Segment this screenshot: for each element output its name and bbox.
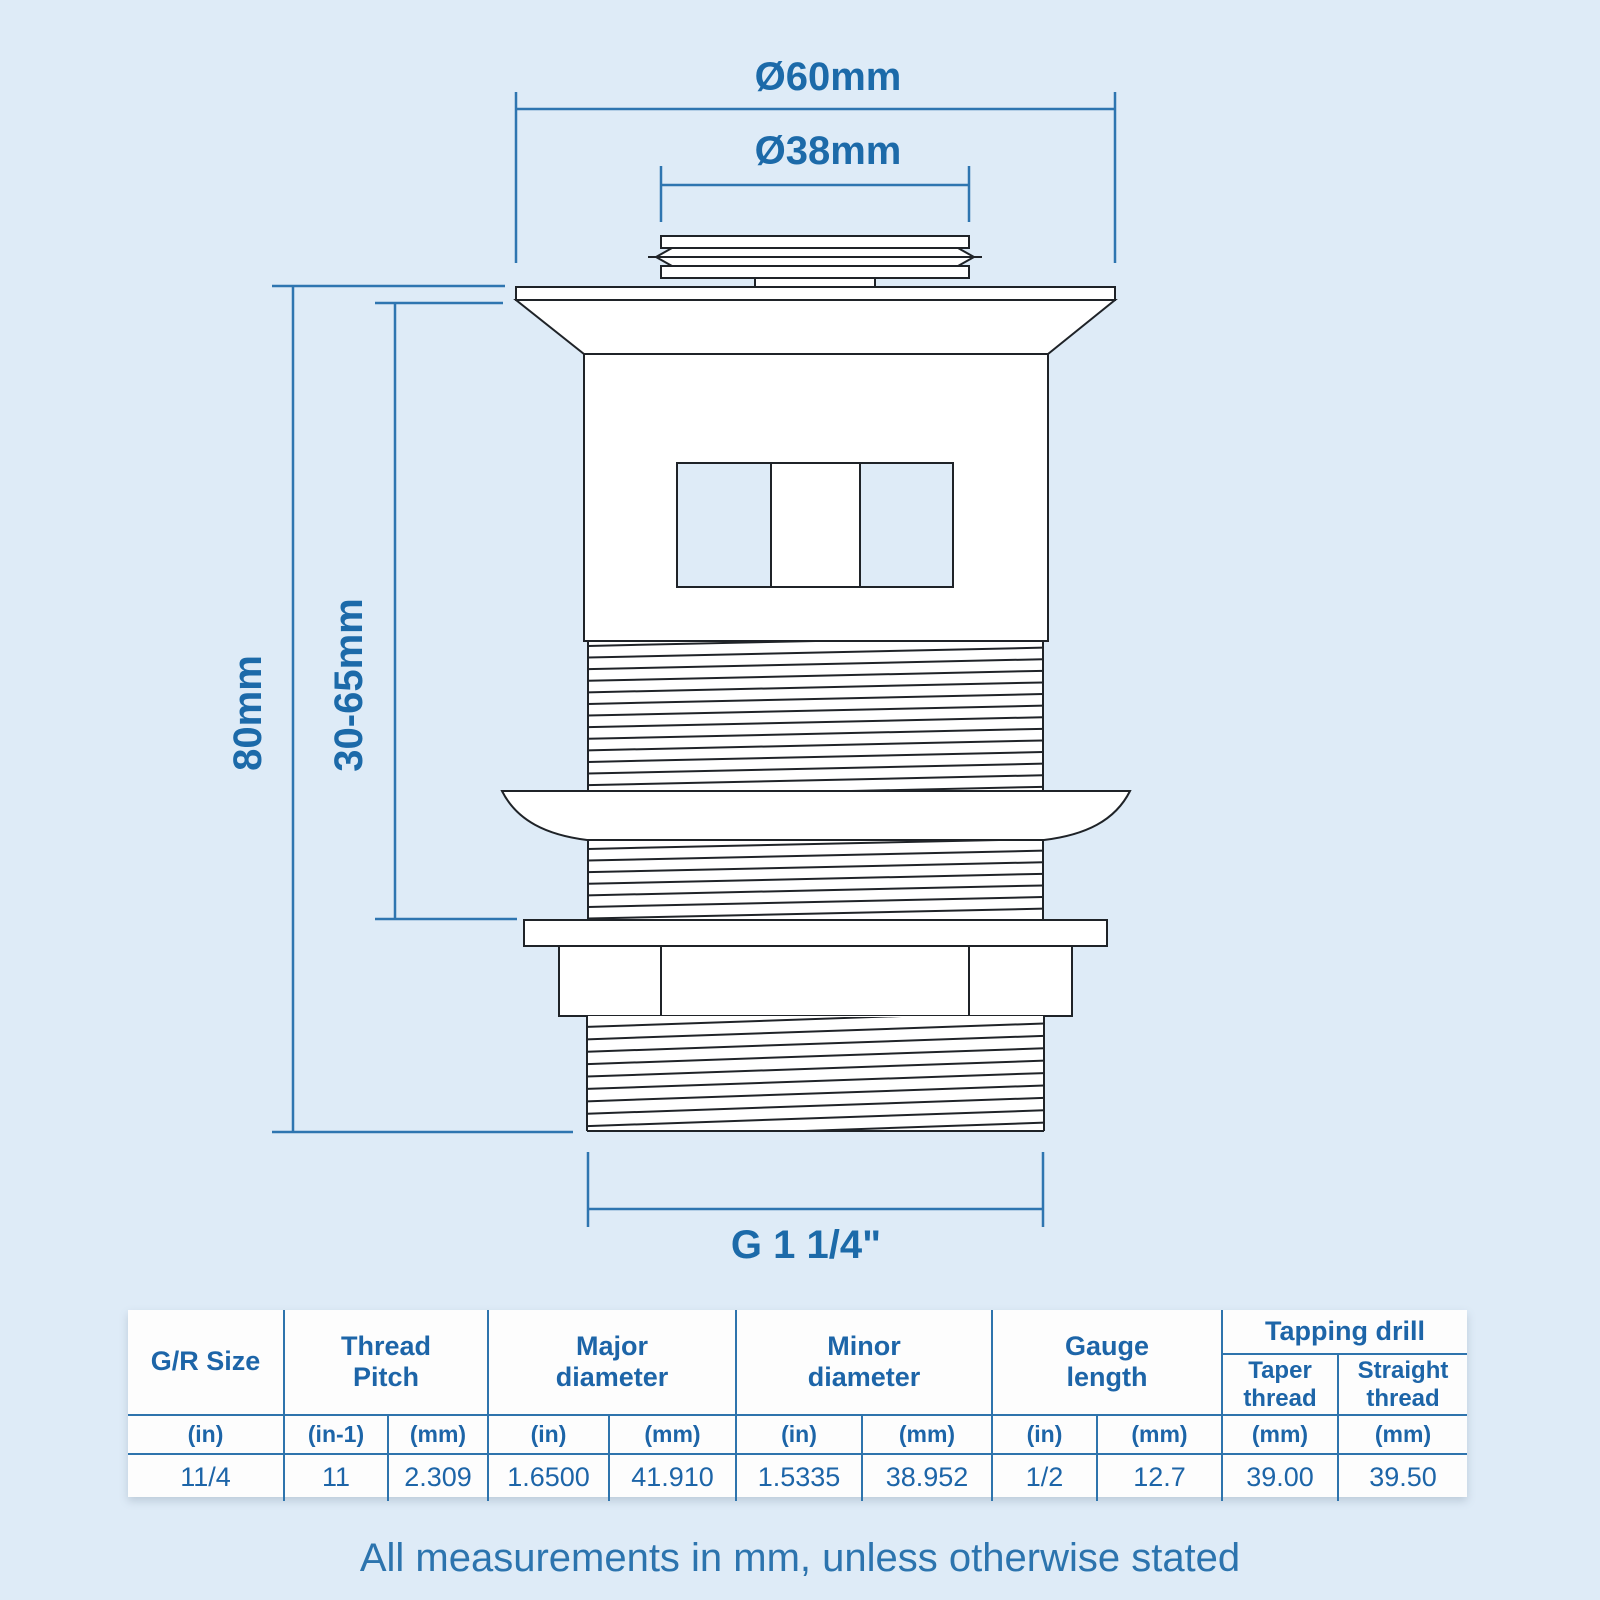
thread-lower-section <box>585 1011 1046 1151</box>
waste-body <box>584 354 1048 641</box>
unit-cell: (mm) <box>862 1415 992 1454</box>
dished-washer <box>502 791 1130 840</box>
plug-stem-tab <box>755 278 875 287</box>
thread-spec-table-panel: G/R Size Thread Pitch Major diameter Min… <box>128 1310 1467 1497</box>
unit-cell: (mm) <box>1097 1415 1222 1454</box>
backnut-flange <box>524 920 1107 946</box>
plug-top-disc <box>661 236 969 248</box>
header-thread-pitch-label: Thread Pitch <box>322 1331 450 1393</box>
dim-label-g114: G 1 1/4" <box>731 1223 881 1267</box>
value-cell: 38.952 <box>862 1454 992 1501</box>
value-cell: 1.5335 <box>736 1454 862 1501</box>
basin-waste-spec-sheet: Ø60mm Ø38mm 80mm 30-65mm G 1 1/4" <box>0 0 1600 1600</box>
dim-inner-diameter-38: Ø38mm <box>661 129 969 222</box>
value-cell: 39.00 <box>1222 1454 1338 1501</box>
dim-label-80mm: 80mm <box>226 655 270 771</box>
value-cell: 12.7 <box>1097 1454 1222 1501</box>
unit-cell: (in) <box>128 1415 284 1454</box>
top-flange <box>516 287 1115 354</box>
header-minor-diameter-label: Minor diameter <box>789 1331 939 1393</box>
unit-cell: (in) <box>736 1415 862 1454</box>
value-cell: 11 <box>284 1454 388 1501</box>
backnut-hex <box>559 946 1072 1016</box>
value-cell: 1.6500 <box>488 1454 609 1501</box>
header-straight-thread: Straight thread <box>1338 1354 1467 1415</box>
header-gauge-length: Gauge length <box>992 1310 1222 1415</box>
dim-total-height-80: 80mm <box>226 286 573 1132</box>
unit-cell: (mm) <box>609 1415 736 1454</box>
dim-adjustable-height-30-65: 30-65mm <box>327 303 517 919</box>
plug-bottom-disc <box>661 266 969 278</box>
dim-label-30-65mm: 30-65mm <box>327 598 371 771</box>
unit-cell: (in-1) <box>284 1415 388 1454</box>
flange-rim <box>516 287 1115 300</box>
thread-mid-section <box>586 839 1045 930</box>
value-cell: 11/4 <box>128 1454 284 1501</box>
measurements-note: All measurements in mm, unless otherwise… <box>0 1536 1600 1581</box>
unit-cell: (mm) <box>388 1415 488 1454</box>
header-tapping-drill: Tapping drill <box>1222 1310 1467 1354</box>
header-gr-size: G/R Size <box>128 1310 284 1415</box>
unit-cell: (mm) <box>1222 1415 1338 1454</box>
plug-cap <box>648 236 982 287</box>
dim-label-60mm: Ø60mm <box>755 55 902 99</box>
flange-taper <box>516 300 1115 354</box>
header-major-diameter-label: Major diameter <box>537 1331 687 1393</box>
unit-cell: (in) <box>992 1415 1097 1454</box>
header-taper-thread: Taper thread <box>1222 1354 1338 1415</box>
unit-cell: (in) <box>488 1415 609 1454</box>
value-cell: 1/2 <box>992 1454 1097 1501</box>
backnut <box>524 920 1107 1016</box>
value-cell: 39.50 <box>1338 1454 1467 1501</box>
thread-upper-section <box>586 636 1045 797</box>
dim-label-38mm: Ø38mm <box>755 129 902 173</box>
thread-spec-table: G/R Size Thread Pitch Major diameter Min… <box>128 1310 1467 1501</box>
value-cell: 41.910 <box>609 1454 736 1501</box>
overflow-slot-center <box>771 463 860 587</box>
header-major-diameter: Major diameter <box>488 1310 736 1415</box>
header-gauge-length-label: Gauge length <box>1043 1331 1171 1393</box>
dim-bottom-thread-g114: G 1 1/4" <box>588 1152 1043 1267</box>
value-cell: 2.309 <box>388 1454 488 1501</box>
header-minor-diameter: Minor diameter <box>736 1310 992 1415</box>
header-thread-pitch: Thread Pitch <box>284 1310 488 1415</box>
unit-cell: (mm) <box>1338 1415 1467 1454</box>
